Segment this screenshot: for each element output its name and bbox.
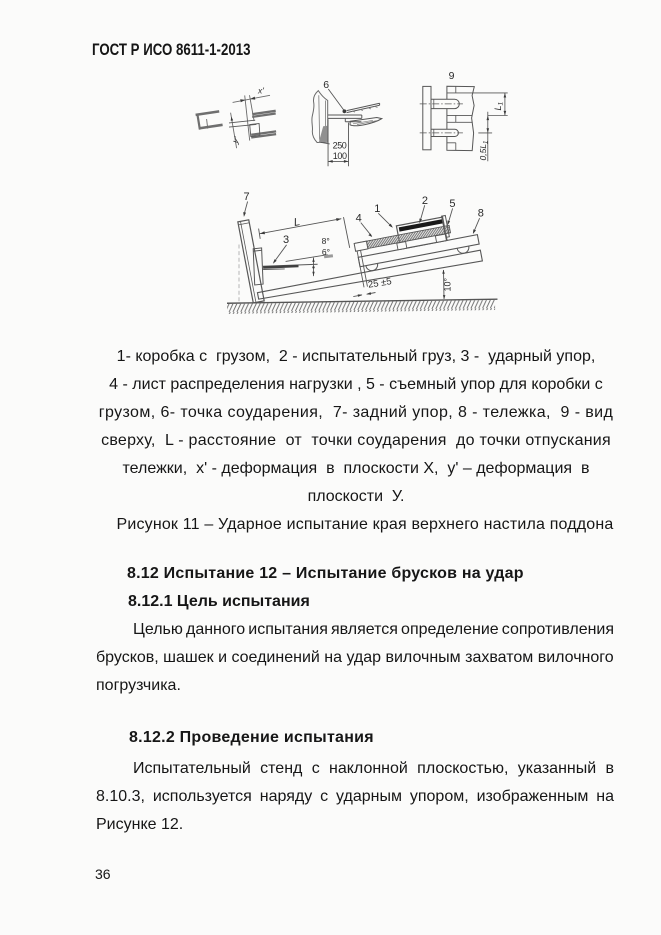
svg-text:L1: L1 (493, 101, 505, 110)
svg-text:0,5L1: 0,5L1 (478, 141, 490, 161)
svg-text:2: 2 (422, 195, 428, 207)
svg-text:L: L (293, 216, 301, 229)
svg-text:250: 250 (333, 141, 347, 151)
svg-text:3: 3 (283, 234, 289, 246)
svg-text:6°: 6° (322, 247, 330, 257)
svg-text:5: 5 (449, 198, 455, 210)
svg-text:7: 7 (244, 191, 250, 203)
svg-text:x': x' (257, 86, 264, 96)
svg-text:1: 1 (374, 203, 380, 215)
svg-text:4: 4 (356, 212, 362, 224)
svg-text:10°: 10° (443, 277, 453, 291)
svg-text:100: 100 (333, 151, 347, 161)
svg-text:9: 9 (449, 70, 455, 82)
svg-text:8: 8 (478, 208, 484, 220)
svg-text:8°: 8° (322, 236, 330, 246)
svg-text:25 ±5: 25 ±5 (367, 276, 392, 291)
svg-text:y': y' (229, 135, 241, 146)
